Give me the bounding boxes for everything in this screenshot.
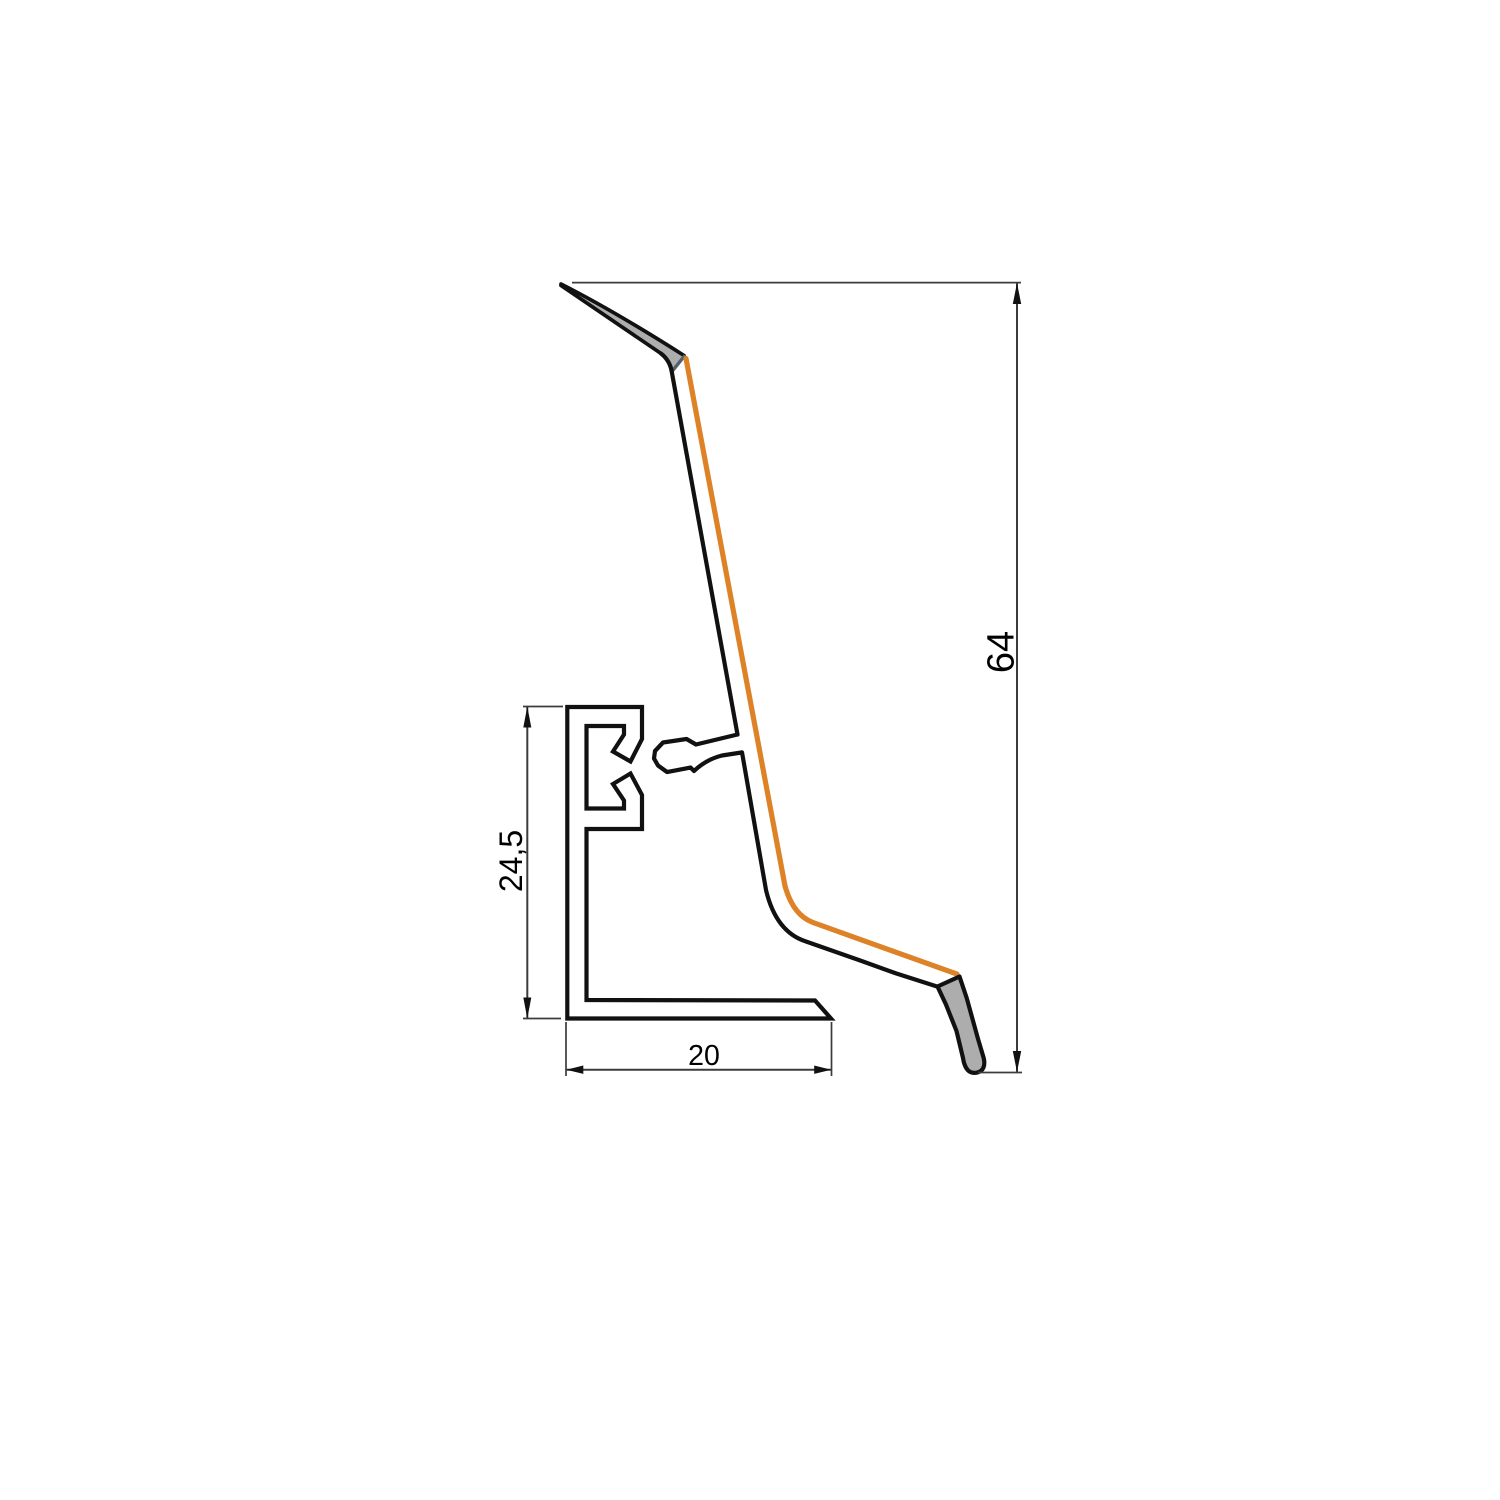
svg-text:24,5: 24,5 — [493, 830, 529, 892]
svg-text:64: 64 — [981, 631, 1023, 673]
svg-text:20: 20 — [688, 1040, 720, 1072]
